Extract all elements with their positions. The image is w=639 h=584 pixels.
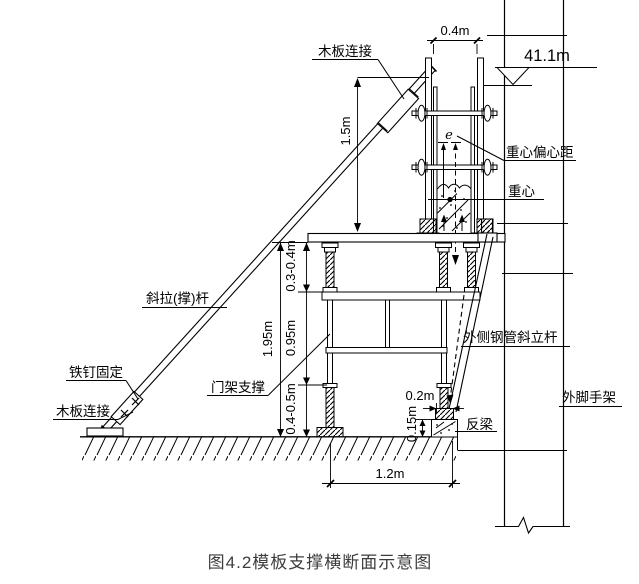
- figure-page: 木板连接 0.4m 41.1m 重心偏心距 重心 e 1.5m 斜拉(撑)杆 铁…: [0, 0, 639, 584]
- dim-frame-span: 1.2m: [376, 466, 405, 481]
- dim-form-top-width: 0.4m: [441, 23, 470, 38]
- jack: [322, 243, 338, 292]
- label-eccentric-distance: 重心偏心距: [506, 145, 574, 160]
- dim-jack-top-range: 0.3-0.4m: [283, 240, 298, 291]
- concrete-fill: [438, 184, 472, 231]
- label-plank-connect-bottom: 木板连接: [56, 403, 110, 419]
- dim-frame-body-height: 0.95m: [283, 320, 298, 356]
- dim-beam-top-width: 0.2m: [406, 388, 435, 403]
- dim-beam-height: 0.15m: [404, 406, 419, 442]
- label-nail-fix: 铁钉固定: [69, 365, 123, 380]
- label-plank-connect-top: 木板连接: [318, 43, 372, 59]
- ground: [80, 437, 456, 461]
- jack: [464, 243, 480, 292]
- dim-jack-bottom-range: 0.4-0.5m: [283, 383, 298, 434]
- dim-elevation-level: 41.1m: [524, 47, 570, 65]
- support-platform: [308, 234, 505, 243]
- label-outer-scaffold: 外脚手架: [562, 390, 616, 405]
- elevation-level-icon: [497, 68, 529, 85]
- label-outer-steel-incline-rod: 外侧钢管斜立杆: [463, 330, 558, 345]
- dim-frame-total-height: 1.95m: [260, 321, 275, 357]
- dim-form-height: 1.5m: [338, 117, 353, 146]
- figure-caption: 图4.2模板支撑横断面示意图: [208, 553, 433, 572]
- label-counter-beam: 反梁: [466, 417, 493, 432]
- label-center-of-gravity: 重心: [508, 184, 536, 199]
- formwork-cross-section-diagram: 木板连接 0.4m 41.1m 重心偏心距 重心 e 1.5m 斜拉(撑)杆 铁…: [0, 0, 639, 584]
- counter-beam-block: [432, 420, 458, 438]
- label-diagonal-rod: 斜拉(撑)杆: [146, 291, 209, 306]
- door-frame: [317, 292, 480, 437]
- label-eccentricity-symbol: e: [445, 128, 453, 143]
- jack: [436, 243, 452, 292]
- label-door-frame-support: 门架支撑: [211, 380, 265, 395]
